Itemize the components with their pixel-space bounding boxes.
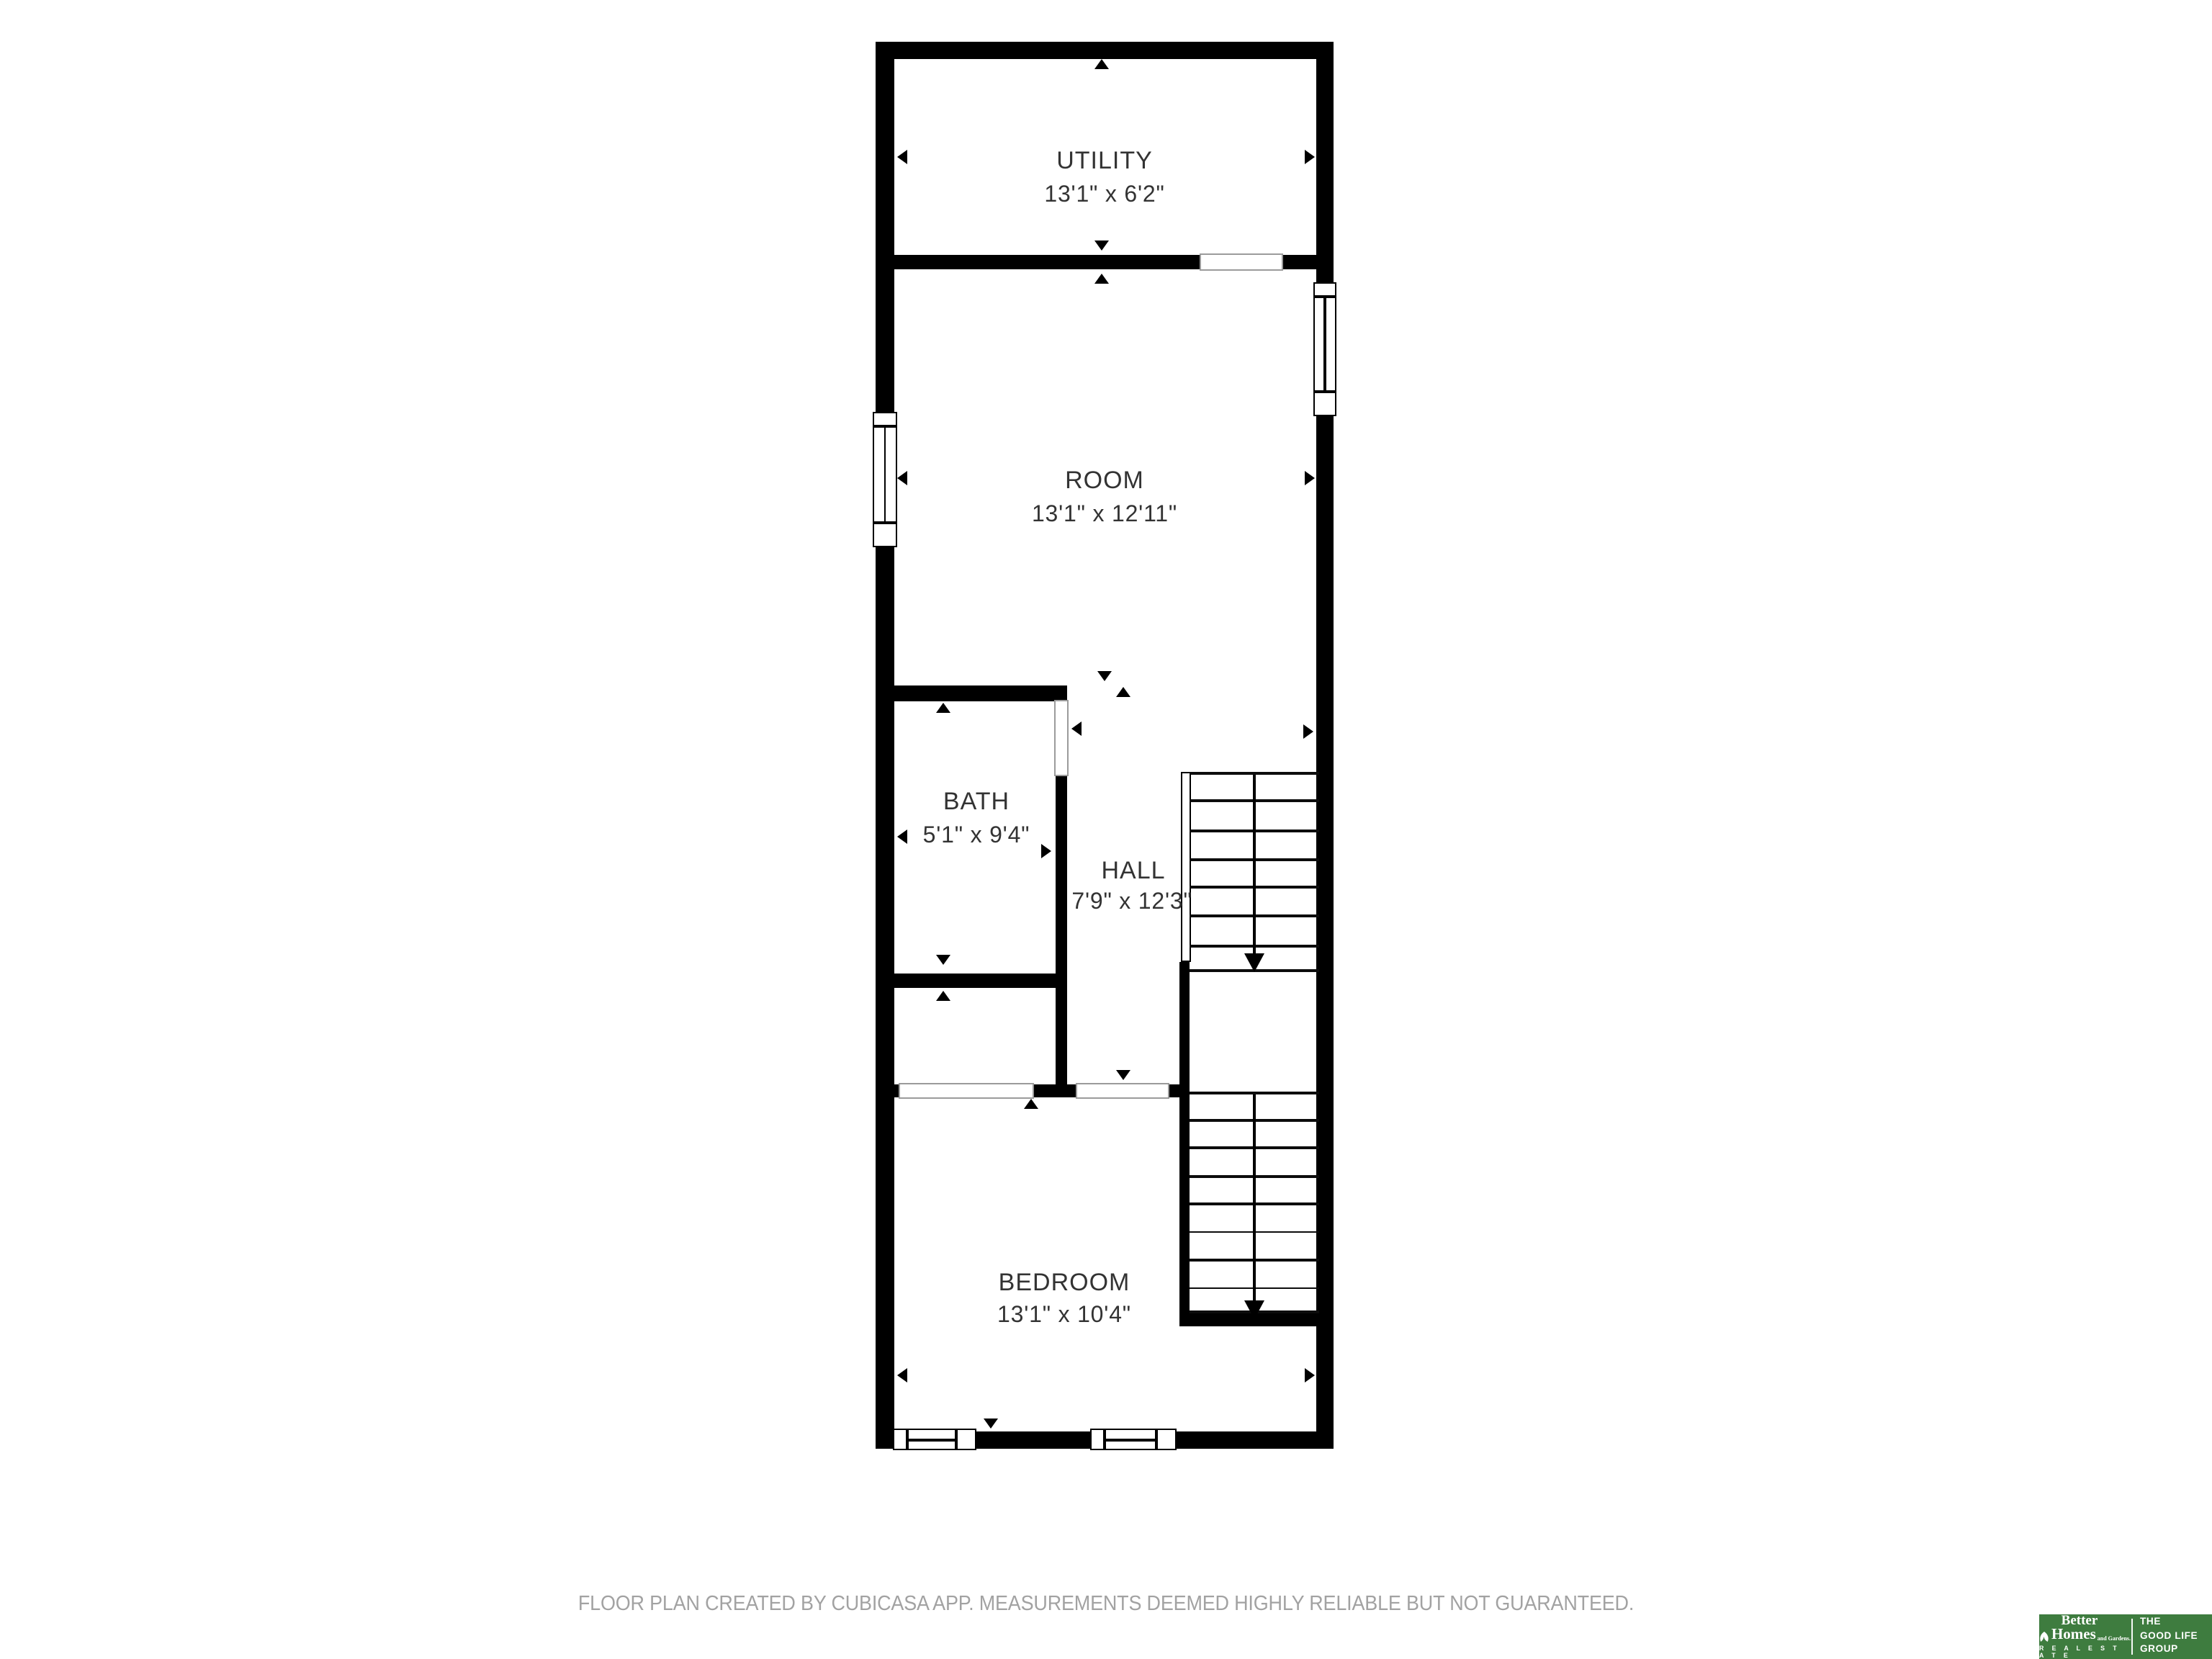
logo-tagline-2: GOOD LIFE xyxy=(2140,1629,2212,1643)
logo-brand-bottom: R E A L E S T A T E xyxy=(2039,1646,2131,1659)
door-opening-bedroom-right xyxy=(1076,1083,1169,1099)
stair-direction-arrow-upper xyxy=(1244,953,1264,972)
room-dimensions-bath: 5'1" x 9'4" xyxy=(923,824,1030,850)
footer-disclaimer: FLOOR PLAN CREATED BY CUBICASA APP. MEAS… xyxy=(578,1593,1634,1616)
wall-stair-left xyxy=(1179,962,1190,1326)
bhg-leaf-icon xyxy=(2040,1632,2050,1643)
wall-utility-divider-right xyxy=(1283,255,1316,269)
room-dimensions-bedroom: 13'1" x 10'4" xyxy=(997,1303,1131,1329)
wall-bath-bottom xyxy=(894,974,1067,988)
window-bedroom-left xyxy=(893,1429,976,1450)
door-opening-bedroom-left xyxy=(899,1083,1034,1099)
wall-bedroom-top-nib xyxy=(876,1084,900,1097)
logo-brand-sub: and Gardens. xyxy=(2098,1636,2131,1642)
stair-direction-arrow-lower xyxy=(1244,1300,1264,1319)
stair-direction-line-upper xyxy=(1254,781,1256,953)
stair-direction-line-lower xyxy=(1254,1094,1256,1300)
measure-arrow-bedroom-right xyxy=(1305,1368,1315,1382)
measure-arrow-vestibule-up xyxy=(936,991,950,1001)
wall-bedroom-top-mid xyxy=(1033,1084,1077,1097)
measure-arrow-utility-left xyxy=(897,150,907,164)
measure-arrow-bedroom-down xyxy=(984,1419,998,1429)
floorplan-canvas: UTILITY 13'1" x 6'2" ROOM 13'1" x 12'11"… xyxy=(0,0,2212,1659)
room-dimensions-utility: 13'1" x 6'2" xyxy=(1044,183,1164,209)
measure-arrow-hall-left xyxy=(1071,721,1082,736)
door-opening-utility xyxy=(1200,253,1283,271)
measure-arrow-bedroom-left xyxy=(897,1368,907,1382)
measure-arrow-hall-down xyxy=(1116,1070,1130,1080)
room-label-room: ROOM xyxy=(1065,467,1144,495)
room-label-bath: BATH xyxy=(943,788,1010,817)
measure-arrow-room-right xyxy=(1305,471,1315,485)
window-room-right xyxy=(1313,282,1336,416)
measure-arrow-utility-down xyxy=(1094,240,1109,251)
measure-arrow-bath-left xyxy=(897,829,907,844)
wall-bath-top xyxy=(894,685,1067,701)
measure-arrow-bath-down xyxy=(936,955,950,965)
measure-arrow-bath-up xyxy=(936,703,950,713)
logo-brand-block: Better Homes and Gardens. R E A L E S T … xyxy=(2039,1614,2131,1659)
room-label-utility: UTILITY xyxy=(1056,147,1153,176)
wall-bath-right xyxy=(1056,775,1067,1096)
logo-tagline-block: THE GOOD LIFE GROUP xyxy=(2133,1614,2212,1659)
measure-arrow-hall-up xyxy=(1116,687,1130,697)
measure-arrow-bath-right xyxy=(1041,844,1051,858)
room-dimensions-hall: 7'9" x 12'3" xyxy=(1071,890,1192,916)
door-opening-bath xyxy=(1054,700,1069,776)
measure-arrow-room-left xyxy=(897,471,907,485)
room-label-hall: HALL xyxy=(1101,857,1165,886)
measure-arrow-hall-right xyxy=(1303,724,1313,739)
brokerage-logo: Better Homes and Gardens. R E A L E S T … xyxy=(2039,1614,2212,1659)
window-room-left xyxy=(873,412,897,547)
measure-arrow-room-up xyxy=(1094,274,1109,284)
wall-left xyxy=(876,42,894,1449)
measure-arrow-room-down xyxy=(1097,671,1112,681)
logo-tagline-1: THE xyxy=(2140,1616,2212,1629)
room-label-bedroom: BEDROOM xyxy=(999,1269,1130,1298)
measure-arrow-utility-up xyxy=(1094,59,1109,69)
wall-top xyxy=(876,42,1334,59)
logo-brand-main: Homes xyxy=(2051,1628,2096,1643)
measure-arrow-bedroom-up xyxy=(1024,1099,1038,1109)
window-bedroom-right xyxy=(1090,1429,1177,1450)
wall-utility-divider-left xyxy=(894,255,1200,269)
room-dimensions-room: 13'1" x 12'11" xyxy=(1032,503,1177,529)
measure-arrow-utility-right xyxy=(1305,150,1315,164)
logo-tagline-3: GROUP xyxy=(2140,1644,2212,1658)
